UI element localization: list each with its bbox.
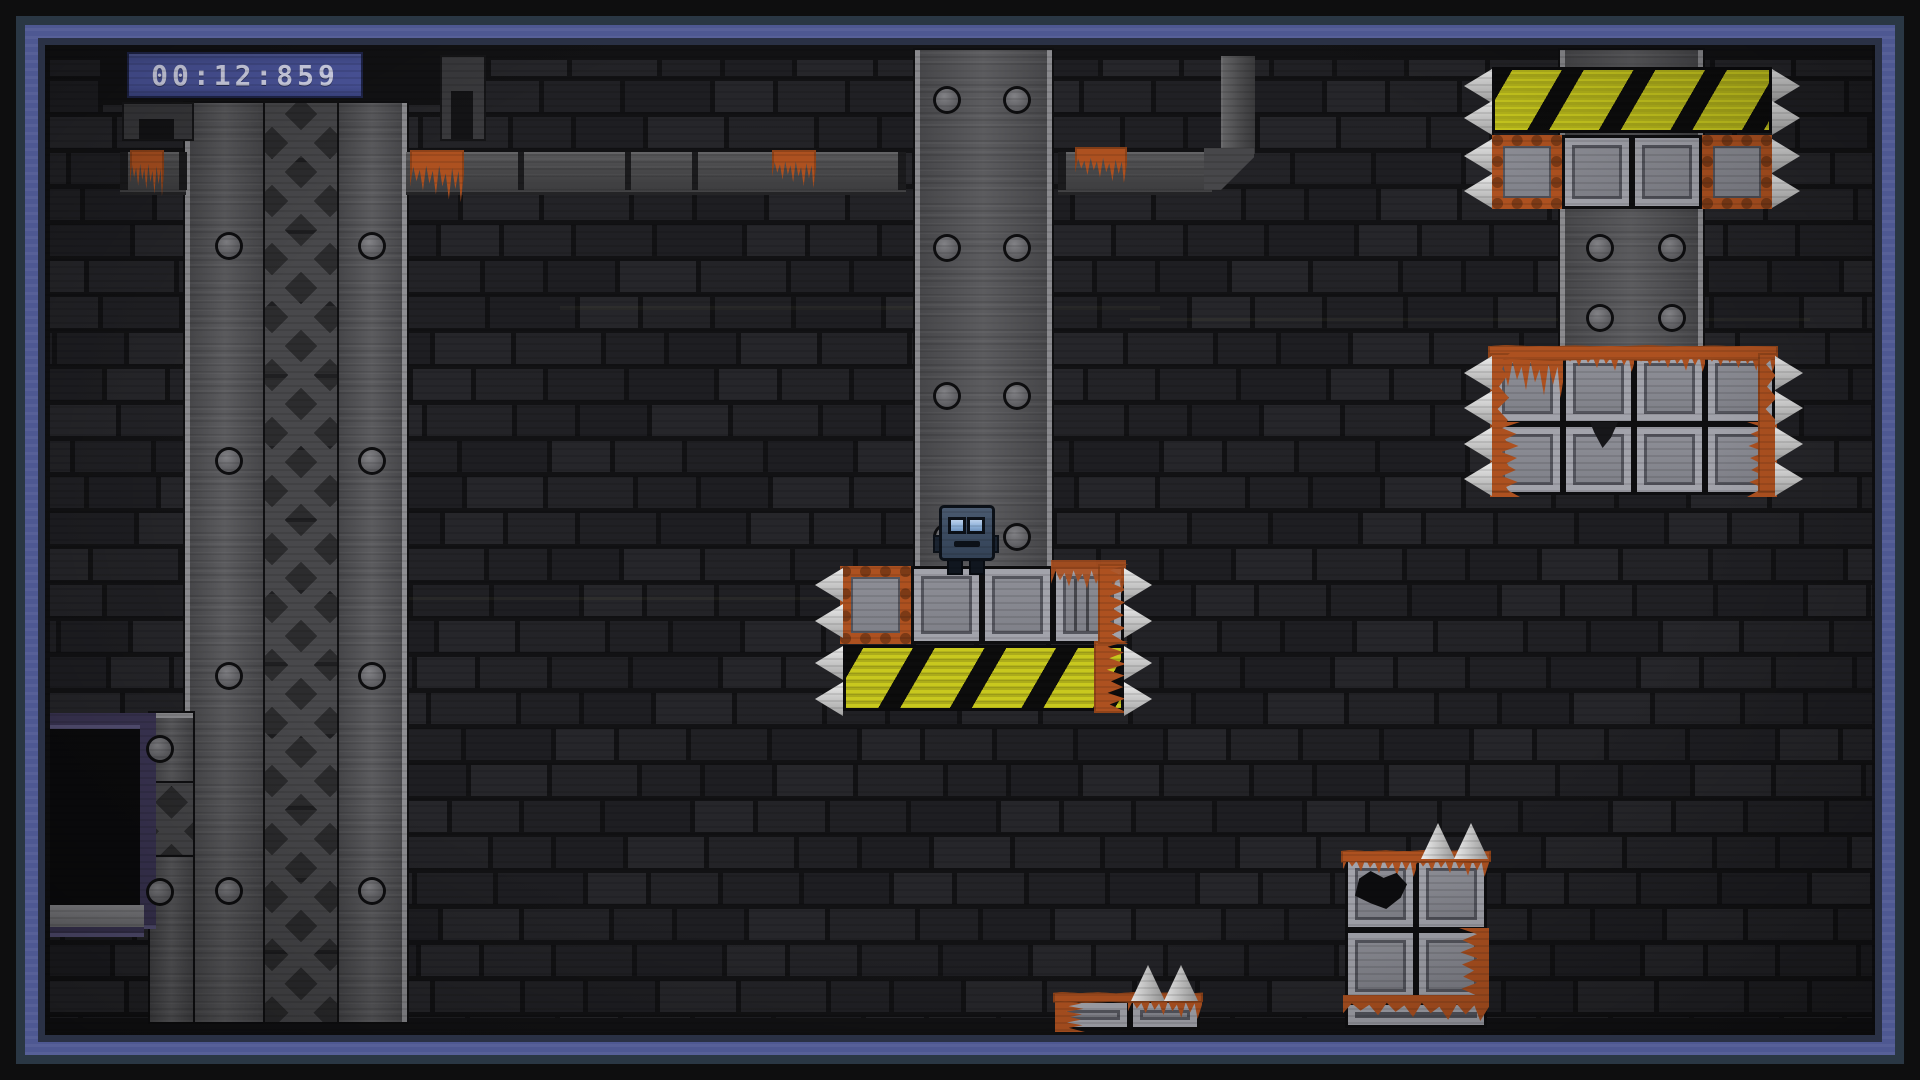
brick [548, 477, 633, 508]
brick [439, 621, 515, 652]
brick [1226, 909, 1284, 940]
rivet-bolt [1006, 385, 1028, 407]
brick [421, 945, 479, 976]
brick [1800, 225, 1872, 256]
brick [1551, 657, 1636, 688]
brick [399, 765, 466, 796]
metal-block [1632, 135, 1702, 209]
brick [661, 513, 746, 544]
brick [50, 513, 134, 544]
brick [1128, 333, 1213, 364]
brick [733, 405, 818, 436]
brick [772, 729, 857, 760]
brick [966, 981, 1042, 1012]
brick [1866, 765, 1872, 796]
brick [1645, 945, 1703, 976]
metal-block [1416, 930, 1487, 1002]
brick [1249, 945, 1334, 976]
brick [93, 549, 178, 580]
brick [651, 873, 718, 904]
brick [1717, 837, 1775, 868]
pipe-cap [179, 152, 187, 190]
brick [628, 837, 704, 868]
brick [1254, 765, 1312, 796]
brick [50, 117, 112, 148]
brick [403, 837, 488, 868]
brick [1532, 909, 1590, 940]
brick [925, 729, 992, 760]
ceiling-bracket [122, 102, 194, 141]
brick [103, 297, 179, 328]
brick [1659, 981, 1744, 1012]
metal-block [1702, 135, 1772, 209]
brick [580, 513, 656, 544]
brick [1102, 297, 1187, 328]
brick [107, 369, 165, 400]
brick [810, 225, 877, 256]
brick [1260, 117, 1336, 148]
brick [1663, 621, 1739, 652]
brick [620, 261, 696, 292]
brick [1376, 153, 1461, 184]
brick [701, 477, 768, 508]
rust-patch [1488, 345, 1778, 361]
brick [691, 729, 767, 760]
brick [1263, 873, 1330, 904]
brick [638, 477, 696, 508]
brick [1390, 81, 1457, 112]
brick [799, 837, 857, 868]
brick [1470, 657, 1546, 688]
brick [727, 945, 785, 976]
rivet-bolt [149, 881, 171, 903]
brick [1053, 225, 1111, 256]
brick [1555, 945, 1640, 976]
brick [1812, 873, 1870, 904]
brick [1713, 549, 1771, 580]
brick [1345, 405, 1430, 436]
brick [490, 297, 575, 328]
brick [1470, 549, 1537, 580]
brick [1317, 765, 1384, 796]
brick [1272, 981, 1348, 1012]
brick [629, 369, 714, 400]
brick [1709, 261, 1767, 292]
alcove-frame-bottom [50, 927, 144, 937]
brick [525, 981, 583, 1012]
brick [1011, 765, 1078, 796]
robot-head [939, 505, 995, 561]
brick [1160, 477, 1245, 508]
brick [1744, 621, 1829, 652]
brick [1852, 837, 1872, 868]
brick [50, 621, 56, 652]
brick [831, 981, 889, 1012]
rivet-bolt [218, 880, 240, 902]
rivet-bolt [218, 235, 240, 257]
brick [920, 909, 978, 940]
rivet-bolt [1006, 89, 1028, 111]
brick [466, 729, 551, 760]
brick [1470, 765, 1555, 796]
brick [1331, 369, 1389, 400]
brick [737, 693, 822, 724]
brick [1309, 189, 1376, 220]
brick [673, 621, 740, 652]
brick [556, 945, 632, 976]
brick [1240, 837, 1316, 868]
brick [1370, 801, 1437, 832]
brick [624, 549, 700, 580]
rivet-bolt [936, 89, 958, 111]
brick [435, 981, 520, 1012]
brick [1498, 297, 1556, 328]
brick [1217, 801, 1302, 832]
brick [1313, 261, 1398, 292]
brick [1838, 909, 1872, 940]
rivet-bolt [936, 385, 958, 407]
brick [1188, 225, 1264, 256]
brick [1335, 657, 1393, 688]
brick [1506, 981, 1573, 1012]
brick [462, 441, 547, 472]
brick [687, 441, 763, 472]
brick [943, 945, 1028, 976]
brick [819, 117, 877, 148]
brick [50, 81, 98, 112]
metal-block [840, 566, 911, 644]
brick [1565, 585, 1632, 616]
brick [588, 981, 655, 1012]
robot-mouth [954, 541, 980, 547]
pipe-joint [518, 152, 524, 190]
pipe-cap [1058, 152, 1066, 190]
brick [948, 765, 1006, 796]
brick [1307, 801, 1365, 832]
brick [605, 801, 690, 832]
brick [677, 909, 744, 940]
brick [50, 369, 102, 400]
rivet-bolt [936, 237, 958, 259]
brick [1125, 117, 1183, 148]
brick [1088, 369, 1155, 400]
brick [513, 117, 571, 148]
metal-block [1345, 1002, 1487, 1028]
brick [1412, 585, 1497, 616]
brick [1192, 297, 1250, 328]
brick [1439, 693, 1497, 724]
brick [705, 765, 772, 796]
brick [1862, 477, 1872, 508]
brick [1385, 477, 1461, 508]
brick [1808, 585, 1866, 616]
brick [409, 297, 485, 328]
brick [50, 477, 84, 508]
brick [1116, 225, 1183, 256]
brick [485, 261, 543, 292]
brick [427, 405, 512, 436]
brick [773, 477, 849, 508]
brick [1246, 189, 1304, 220]
alcove-opening [50, 729, 140, 907]
brick [715, 81, 773, 112]
brick [1804, 513, 1872, 544]
metal-block [1634, 353, 1705, 424]
brick [1560, 765, 1618, 796]
pipe-vertical [1221, 56, 1255, 154]
brick [1001, 801, 1059, 832]
brick [745, 621, 821, 652]
brick [1695, 765, 1771, 796]
brick [1871, 585, 1872, 616]
brick [1849, 81, 1872, 112]
brick [1839, 441, 1872, 472]
robot-eye-left [951, 520, 963, 531]
brick [50, 261, 84, 292]
brick [1096, 945, 1163, 976]
brick [576, 225, 652, 256]
brick [417, 873, 493, 904]
brick [1295, 153, 1371, 184]
brick [1800, 117, 1867, 148]
brick [614, 909, 672, 940]
brick [517, 405, 575, 436]
brick [1407, 549, 1465, 580]
brick [556, 729, 614, 760]
brick [1804, 297, 1862, 328]
brick [1164, 549, 1231, 580]
brick [508, 513, 575, 544]
brick [1232, 261, 1308, 292]
brick [983, 909, 1050, 940]
metal-block [1057, 1000, 1130, 1030]
brick [580, 405, 647, 436]
brick [50, 405, 116, 436]
brick [705, 549, 790, 580]
brick [791, 261, 849, 292]
brick [656, 693, 732, 724]
brick [1704, 657, 1771, 688]
brick [796, 297, 881, 328]
rivet-bolt [1006, 526, 1028, 548]
brick [50, 333, 52, 364]
brick [637, 945, 722, 976]
brick [548, 369, 624, 400]
brick [484, 945, 551, 976]
brick [520, 621, 605, 652]
brick [1168, 837, 1235, 868]
brick [445, 513, 503, 544]
brick [723, 657, 781, 688]
brick [417, 657, 475, 688]
brick [588, 873, 646, 904]
brick [1033, 945, 1091, 976]
brick [830, 909, 915, 940]
brick [1231, 729, 1298, 760]
robot-eye-right [970, 520, 982, 531]
brick [1506, 873, 1564, 904]
brick [823, 405, 881, 436]
brick [1192, 405, 1259, 436]
brick [1057, 513, 1115, 544]
brick [1623, 549, 1708, 580]
brick [413, 369, 471, 400]
brick [107, 585, 183, 616]
brick [1055, 909, 1131, 940]
brick [1718, 585, 1803, 616]
brick [1218, 333, 1276, 364]
game-viewport[interactable]: 00:12:859 [0, 0, 1920, 1080]
brick [1408, 297, 1493, 328]
brick [741, 333, 817, 364]
brick [584, 693, 651, 724]
brick [552, 441, 610, 472]
brick [1655, 693, 1740, 724]
brick [1268, 693, 1344, 724]
brick [777, 765, 853, 796]
brick [1690, 729, 1775, 760]
metal-block [1563, 424, 1634, 495]
hazard-stripe-block [1492, 67, 1772, 133]
brick [1264, 405, 1340, 436]
brick [1438, 621, 1523, 652]
brick [1641, 873, 1717, 904]
brick [1047, 333, 1123, 364]
brick [480, 657, 547, 688]
rivet-bolt [361, 235, 383, 257]
brick [1844, 261, 1872, 292]
metal-block [1345, 858, 1416, 930]
brick [1381, 189, 1457, 220]
brick [1164, 441, 1222, 472]
brick [1466, 261, 1533, 292]
brick [610, 621, 668, 652]
brick [1722, 873, 1807, 904]
brick [1097, 261, 1155, 292]
brick [1317, 549, 1402, 580]
brick [524, 801, 600, 832]
brick [1299, 441, 1375, 472]
rivet-bolt [361, 450, 383, 472]
rivet-bolt [218, 665, 240, 687]
brick [57, 333, 124, 364]
brick [498, 873, 583, 904]
brick [633, 657, 718, 688]
brick [1595, 909, 1662, 940]
brick [50, 945, 110, 976]
brick [111, 657, 169, 688]
brick [1442, 801, 1518, 832]
brick [1728, 225, 1795, 256]
brick [1848, 549, 1872, 580]
brick [1637, 585, 1713, 616]
timer-hud: 00:12:859 [127, 52, 363, 98]
pipe-joint [625, 152, 631, 190]
brick [548, 261, 615, 292]
brick [524, 909, 609, 940]
brick [1776, 657, 1852, 688]
brick [50, 585, 102, 616]
metal-block [1130, 1000, 1200, 1030]
brick [1502, 693, 1569, 724]
brick [1613, 801, 1671, 832]
brick [61, 621, 128, 652]
brick [1079, 477, 1155, 508]
brick [552, 765, 637, 796]
brick [615, 441, 682, 472]
brick [1227, 441, 1294, 472]
brick [1780, 945, 1856, 976]
brick [1269, 225, 1354, 256]
brick [1834, 621, 1872, 652]
brick [1160, 369, 1236, 400]
brick [804, 873, 889, 904]
rivet-bolt [1661, 307, 1683, 329]
brick [997, 729, 1073, 760]
brick [1474, 729, 1532, 760]
brick [1285, 621, 1352, 652]
crt-streak [560, 306, 1160, 310]
brick [1196, 693, 1263, 724]
brick [1745, 693, 1803, 724]
brick [957, 873, 1024, 904]
brick [1748, 909, 1833, 940]
ceiling-bracket [440, 55, 486, 141]
brick [1341, 117, 1426, 148]
brick [1528, 621, 1586, 652]
brick [431, 693, 516, 724]
brick [1858, 189, 1872, 220]
brick [749, 909, 825, 940]
brick [1808, 693, 1872, 724]
brick [625, 81, 710, 112]
brick [521, 693, 579, 724]
brick [1380, 441, 1465, 472]
brick [1578, 981, 1654, 1012]
brick [1084, 81, 1151, 112]
brick [1353, 333, 1429, 364]
robot-character [933, 503, 995, 571]
brick [695, 801, 753, 832]
brick [719, 585, 795, 616]
brick [1164, 657, 1240, 688]
brick [1714, 297, 1799, 328]
brick [1357, 621, 1433, 652]
brick [669, 333, 736, 364]
metal-block [982, 566, 1053, 644]
brick [1498, 513, 1574, 544]
brick [50, 441, 70, 472]
metal-block [1416, 858, 1487, 930]
brick [1853, 369, 1872, 400]
brick [50, 297, 98, 328]
metal-block [1492, 135, 1562, 209]
brick [1164, 765, 1249, 796]
brick [50, 189, 80, 220]
brick [790, 945, 857, 976]
brick [894, 873, 952, 904]
brick [89, 477, 156, 508]
brick [1241, 369, 1326, 400]
brick [1029, 873, 1105, 904]
brick [1780, 837, 1847, 868]
brick [854, 261, 921, 292]
brick [471, 765, 547, 796]
brick [858, 441, 916, 472]
brick [50, 153, 66, 184]
brick [657, 225, 742, 256]
brick [1083, 765, 1159, 796]
